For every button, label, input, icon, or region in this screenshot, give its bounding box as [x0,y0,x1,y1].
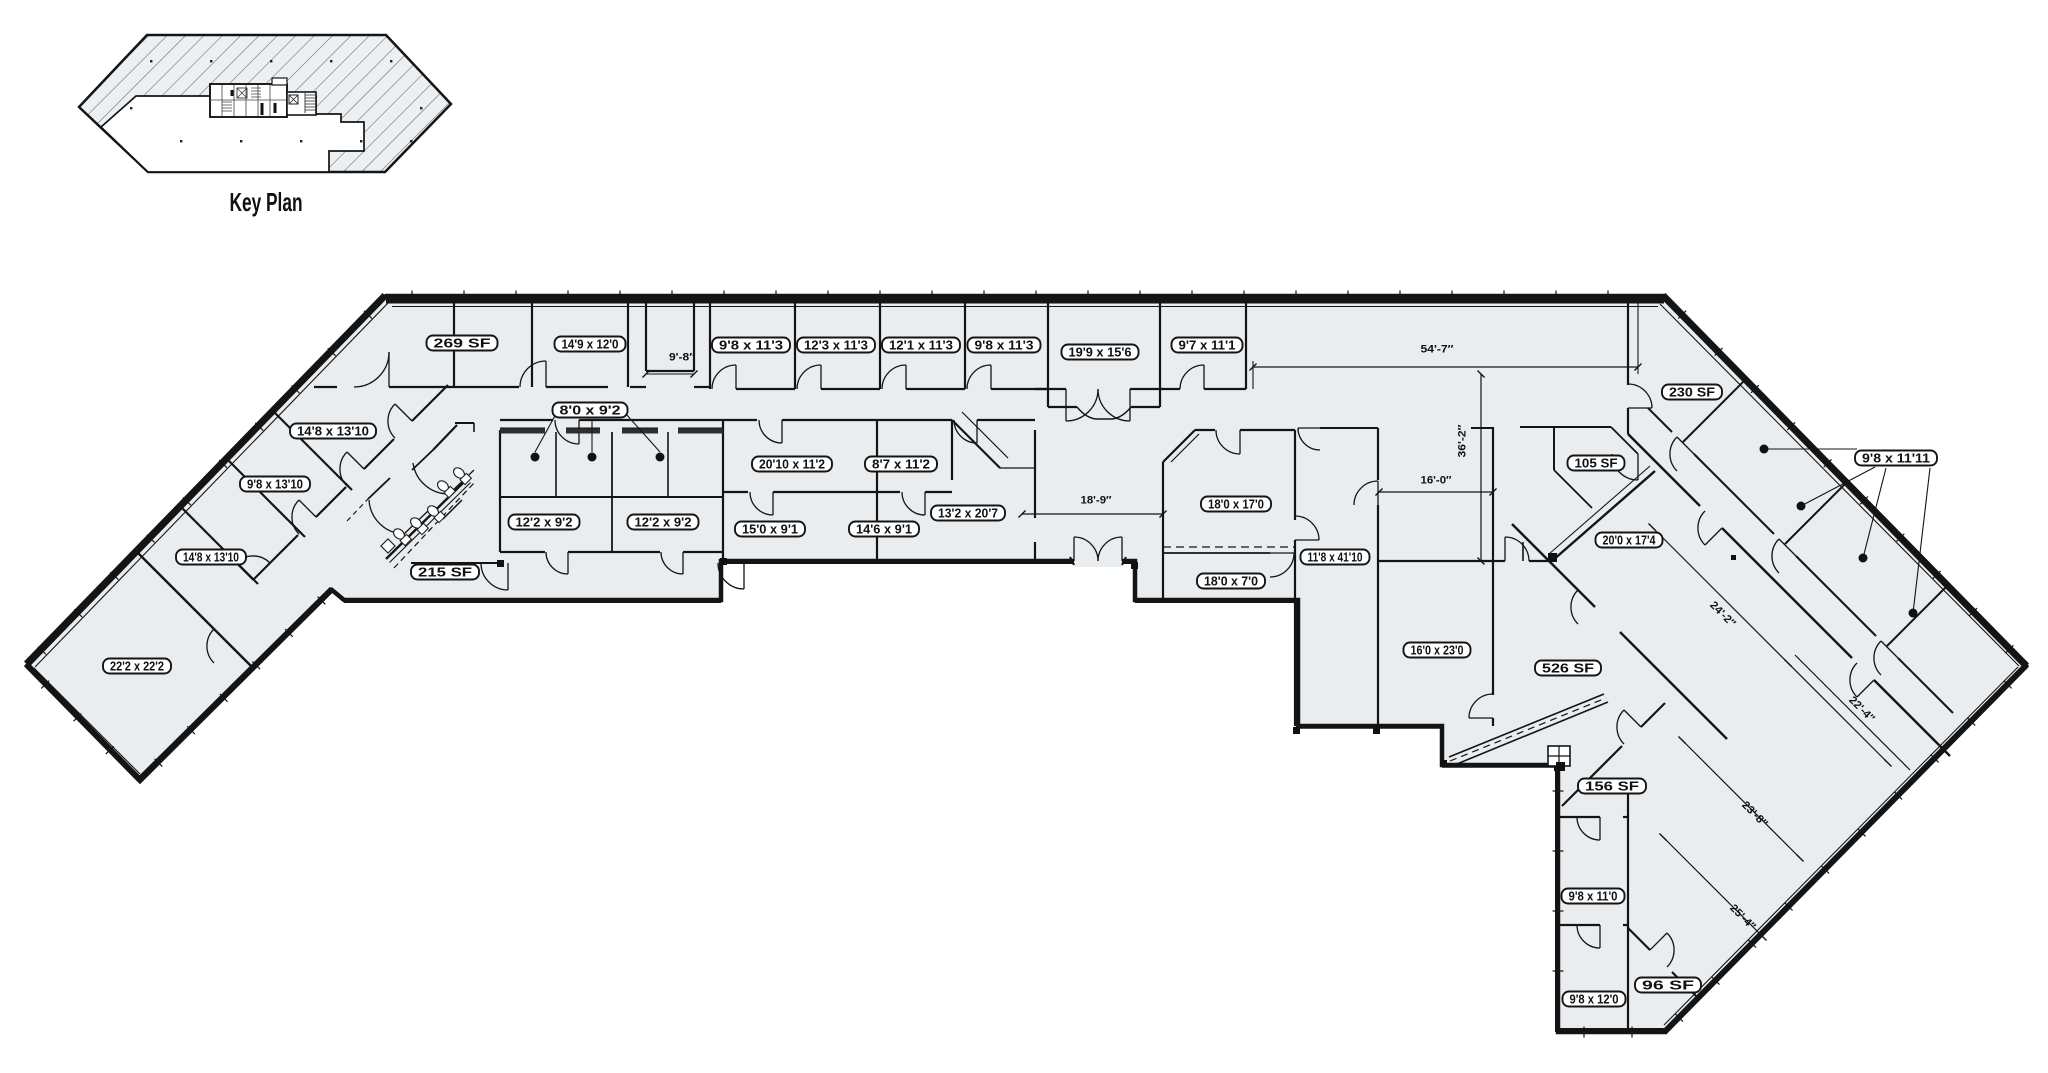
svg-text:105 SF: 105 SF [1575,455,1618,470]
svg-text:54'-7″: 54'-7″ [1421,344,1455,356]
svg-text:16'-0″: 16'-0″ [1421,475,1453,487]
svg-text:269 SF: 269 SF [434,335,491,350]
svg-text:14'9 x 12'0: 14'9 x 12'0 [562,336,619,351]
svg-text:16'0 x 23'0: 16'0 x 23'0 [1411,642,1464,657]
svg-text:230 SF: 230 SF [1669,384,1715,399]
svg-text:12'2 x 9'2: 12'2 x 9'2 [635,514,692,529]
svg-text:9'8 x 11'3: 9'8 x 11'3 [719,337,783,352]
svg-text:526 SF: 526 SF [1542,660,1594,675]
svg-text:20'0 x 17'4: 20'0 x 17'4 [1603,532,1657,547]
svg-text:8'7 x 11'2: 8'7 x 11'2 [872,456,930,471]
svg-text:14'8 x 13'10: 14'8 x 13'10 [183,549,239,564]
svg-text:9'8 x 11'3: 9'8 x 11'3 [975,337,1034,352]
svg-text:14'8 x 13'10: 14'8 x 13'10 [297,423,369,438]
svg-text:18'-9″: 18'-9″ [1081,495,1113,507]
svg-text:9'8 x 11'11: 9'8 x 11'11 [1862,450,1930,465]
svg-text:12'1 x 11'3: 12'1 x 11'3 [889,337,953,352]
svg-text:36'-2″: 36'-2″ [1457,424,1469,458]
svg-text:15'0 x 9'1: 15'0 x 9'1 [742,521,798,536]
svg-text:215 SF: 215 SF [418,564,472,579]
svg-text:9'-8″: 9'-8″ [669,352,696,364]
svg-text:18'0 x 17'0: 18'0 x 17'0 [1208,496,1264,511]
svg-text:19'9 x 15'6: 19'9 x 15'6 [1069,344,1132,359]
svg-text:11'8 x 41'10: 11'8 x 41'10 [1308,549,1363,564]
svg-text:9'7 x 11'1: 9'7 x 11'1 [1179,337,1236,352]
svg-text:Key Plan: Key Plan [230,187,303,217]
svg-text:9'8 x 12'0: 9'8 x 12'0 [1570,991,1619,1006]
svg-text:14'6 x 9'1: 14'6 x 9'1 [856,521,912,536]
svg-text:12'2 x 9'2: 12'2 x 9'2 [516,514,573,529]
svg-text:12'3 x 11'3: 12'3 x 11'3 [804,337,868,352]
svg-text:156 SF: 156 SF [1585,778,1639,793]
svg-text:13'2 x 20'7: 13'2 x 20'7 [938,505,998,520]
svg-text:18'0 x 7'0: 18'0 x 7'0 [1204,573,1258,588]
svg-text:22'2 x 22'2: 22'2 x 22'2 [110,658,164,673]
svg-text:9'8 x 13'10: 9'8 x 13'10 [247,476,303,491]
svg-text:9'8 x 11'0: 9'8 x 11'0 [1569,888,1618,903]
svg-text:8'0 x 9'2: 8'0 x 9'2 [560,402,621,417]
svg-text:20'10 x 11'2: 20'10 x 11'2 [759,456,825,471]
svg-text:96 SF: 96 SF [1642,977,1694,992]
